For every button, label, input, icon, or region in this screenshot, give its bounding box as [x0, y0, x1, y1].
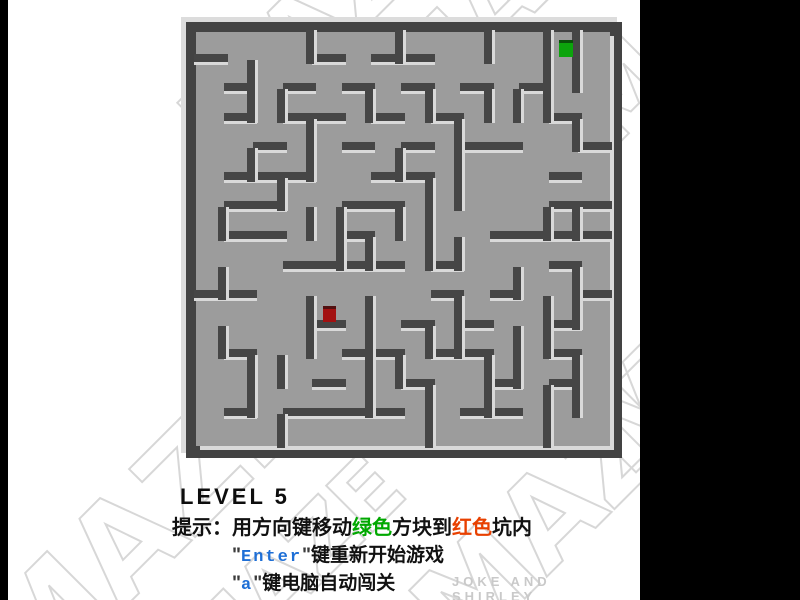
- maze-board: [186, 22, 622, 458]
- maze-wall: [572, 119, 580, 153]
- maze-wall: [490, 142, 524, 150]
- maze-wall: [578, 290, 612, 298]
- maze-wall: [247, 89, 255, 123]
- credit-text: JOKE AND SHIRLEY: [452, 574, 640, 600]
- maze-wall: [365, 385, 373, 419]
- maze-wall: [395, 355, 403, 389]
- maze-wall: [395, 207, 403, 241]
- maze-wall: [218, 326, 226, 360]
- right-black-panel: [640, 0, 800, 600]
- maze-wall: [306, 296, 314, 330]
- hint-line: 提示：用方向键移动绿色方块到红色坑内: [172, 511, 532, 540]
- maze-wall: [224, 201, 258, 209]
- maze-wall: [543, 89, 551, 123]
- maze-wall: [454, 326, 462, 360]
- hint-red-word: 红色: [452, 517, 492, 539]
- maze-wall: [543, 414, 551, 448]
- maze-wall: [490, 408, 524, 416]
- maze-wall: [425, 237, 433, 271]
- maze-wall: [401, 54, 435, 62]
- maze-wall: [454, 237, 462, 271]
- maze-wall: [371, 261, 405, 269]
- maze-wall: [277, 89, 285, 123]
- maze-wall: [425, 89, 433, 123]
- maze-wall: [460, 320, 494, 328]
- maze-wall: [578, 142, 612, 150]
- maze-wall: [395, 30, 403, 64]
- maze-wall: [484, 385, 492, 419]
- maze-wall: [572, 207, 580, 241]
- enter-key-label: Enter: [241, 548, 302, 567]
- maze-wall: [371, 408, 405, 416]
- maze-wall: [454, 119, 462, 153]
- maze-wall: [365, 237, 373, 271]
- maze-wall: [306, 207, 314, 241]
- maze-wall: [425, 385, 433, 419]
- maze-wall: [543, 385, 551, 419]
- maze-wall: [572, 267, 580, 301]
- maze-wall: [454, 178, 462, 212]
- maze-wall: [425, 207, 433, 241]
- maze-wall: [247, 385, 255, 419]
- maze-wall: [312, 54, 346, 62]
- close-quote: ": [302, 545, 311, 566]
- autoplay-hint-line: "a"键电脑自动闯关: [232, 568, 395, 595]
- content-area: MAZEMAZEMAZEMAZEMAZEMAZEMAZE LEVEL 5 提示：…: [0, 0, 640, 600]
- maze-wall: [578, 231, 612, 239]
- maze-wall: [513, 326, 521, 360]
- maze-wall: [253, 142, 287, 150]
- hint-suffix: 坑内: [492, 517, 532, 539]
- maze-wall: [454, 148, 462, 182]
- level-label: LEVEL 5: [180, 484, 290, 511]
- maze-wall: [371, 113, 405, 121]
- maze-wall: [460, 142, 494, 150]
- restart-text: 键重新开始游戏: [311, 545, 444, 566]
- maze-wall: [342, 142, 376, 150]
- maze-wall: [490, 231, 524, 239]
- maze-wall: [253, 231, 287, 239]
- maze-wall: [513, 89, 521, 123]
- maze-wall: [572, 60, 580, 94]
- hint-prefix: 提示：用方向键移动: [172, 517, 352, 539]
- maze-wall: [306, 326, 314, 360]
- close-quote: ": [253, 573, 262, 594]
- hint-green-word: 绿色: [352, 517, 392, 539]
- open-quote: ": [232, 545, 241, 566]
- autoplay-text: 键电脑自动闯关: [262, 573, 395, 594]
- game-screen: MAZEMAZEMAZEMAZEMAZEMAZEMAZE LEVEL 5 提示：…: [0, 0, 800, 600]
- maze-wall: [365, 355, 373, 389]
- maze-wall: [365, 296, 373, 330]
- maze-wall: [336, 207, 344, 241]
- open-quote: ": [232, 573, 241, 594]
- player-block-green[interactable]: [559, 40, 573, 57]
- maze-wall: [543, 207, 551, 241]
- maze-wall: [454, 296, 462, 330]
- maze-wall: [572, 30, 580, 64]
- maze-wall: [543, 30, 551, 64]
- maze-wall: [543, 326, 551, 360]
- maze-wall: [365, 326, 373, 360]
- maze-wall: [543, 60, 551, 94]
- maze-wall: [194, 54, 228, 62]
- a-key-label: a: [241, 576, 253, 595]
- maze-wall: [425, 414, 433, 448]
- maze-wall: [484, 30, 492, 64]
- maze-wall: [277, 414, 285, 448]
- maze-wall: [572, 355, 580, 389]
- maze-wall: [513, 355, 521, 389]
- maze-wall: [283, 83, 317, 91]
- maze-wall: [312, 408, 346, 416]
- maze-wall: [401, 142, 435, 150]
- maze-wall: [549, 172, 583, 180]
- maze-wall: [224, 290, 258, 298]
- maze-wall: [543, 296, 551, 330]
- maze-wall: [425, 326, 433, 360]
- maze-wall: [283, 261, 317, 269]
- target-pit-red: [323, 306, 336, 322]
- maze-wall: [306, 30, 314, 64]
- maze-wall: [306, 119, 314, 153]
- maze-wall: [312, 113, 346, 121]
- maze-wall: [425, 178, 433, 212]
- maze-wall: [484, 355, 492, 389]
- maze-wall: [365, 89, 373, 123]
- maze-floor: [196, 32, 610, 446]
- maze-wall: [247, 60, 255, 94]
- maze-wall: [277, 178, 285, 212]
- maze-wall: [277, 355, 285, 389]
- maze-wall: [283, 408, 317, 416]
- maze-wall: [513, 267, 521, 301]
- maze-wall: [572, 296, 580, 330]
- left-edge-bar: [0, 0, 8, 600]
- maze-wall: [484, 89, 492, 123]
- maze-wall: [312, 379, 346, 387]
- hint-mid: 方块到: [392, 517, 452, 539]
- maze-wall: [395, 148, 403, 182]
- maze-wall: [342, 201, 376, 209]
- maze-wall: [247, 355, 255, 389]
- maze-wall: [224, 231, 258, 239]
- maze-wall: [218, 267, 226, 301]
- maze-wall: [247, 148, 255, 182]
- maze-wall: [572, 385, 580, 419]
- maze-wall: [306, 148, 314, 182]
- maze-wall: [336, 237, 344, 271]
- restart-hint-line: "Enter"键重新开始游戏: [232, 540, 444, 567]
- maze-wall: [218, 207, 226, 241]
- maze-wall: [578, 201, 612, 209]
